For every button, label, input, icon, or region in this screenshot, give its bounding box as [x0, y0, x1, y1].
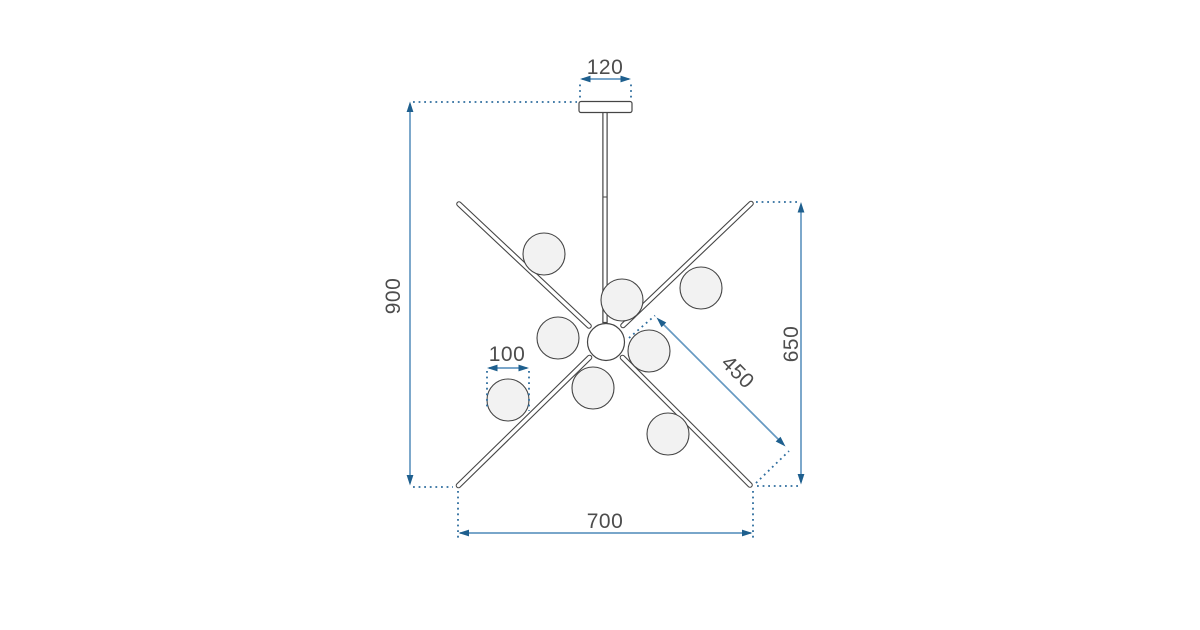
dimension-label-arm-length: 450 — [717, 351, 759, 393]
dimension-label-canopy-width: 120 — [587, 56, 624, 79]
arrowhead-down-icon — [798, 474, 805, 485]
dimension-canopy-width: 120 — [580, 56, 631, 100]
dimension-label-fixture-width: 700 — [587, 510, 624, 533]
chandelier-figure — [459, 102, 752, 486]
technical-drawing-canvas: 120 900 100 450 — [0, 0, 1200, 630]
dimension-overall-height: 900 — [382, 102, 577, 488]
glass-globe — [537, 317, 579, 359]
glass-globe — [523, 233, 565, 275]
dimension-fixture-width: 700 — [458, 491, 753, 541]
center-hub — [588, 324, 625, 361]
glass-globe — [628, 330, 670, 372]
extension-line — [756, 451, 789, 483]
dimension-label-overall-height: 900 — [382, 278, 405, 315]
arm-lower-left — [459, 358, 590, 486]
glass-globe — [487, 379, 529, 421]
arrowhead-up-icon — [798, 202, 805, 213]
glass-globe — [647, 413, 689, 455]
glass-globe — [680, 267, 722, 309]
arrowhead-down-icon — [407, 475, 414, 486]
glass-globe — [601, 279, 643, 321]
arm-upper-left — [459, 204, 589, 326]
arrowhead-up-icon — [407, 102, 414, 113]
arrowhead-left-icon — [459, 530, 470, 537]
chandelier-dimension-diagram: 120 900 100 450 — [0, 0, 1200, 630]
dimension-label-fixture-height: 650 — [780, 326, 803, 363]
arrowhead-right-icon — [742, 530, 753, 537]
glass-globe — [572, 367, 614, 409]
ceiling-canopy — [579, 102, 632, 113]
dimension-label-globe-diameter: 100 — [489, 343, 526, 366]
